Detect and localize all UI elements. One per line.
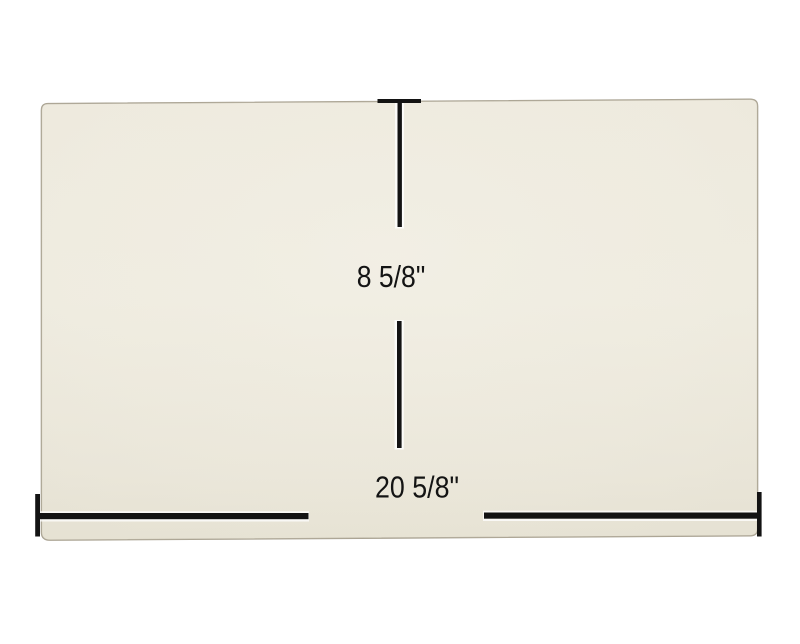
svg-text:20 5/8": 20 5/8"	[375, 470, 459, 505]
svg-text:8 5/8": 8 5/8"	[357, 259, 426, 294]
